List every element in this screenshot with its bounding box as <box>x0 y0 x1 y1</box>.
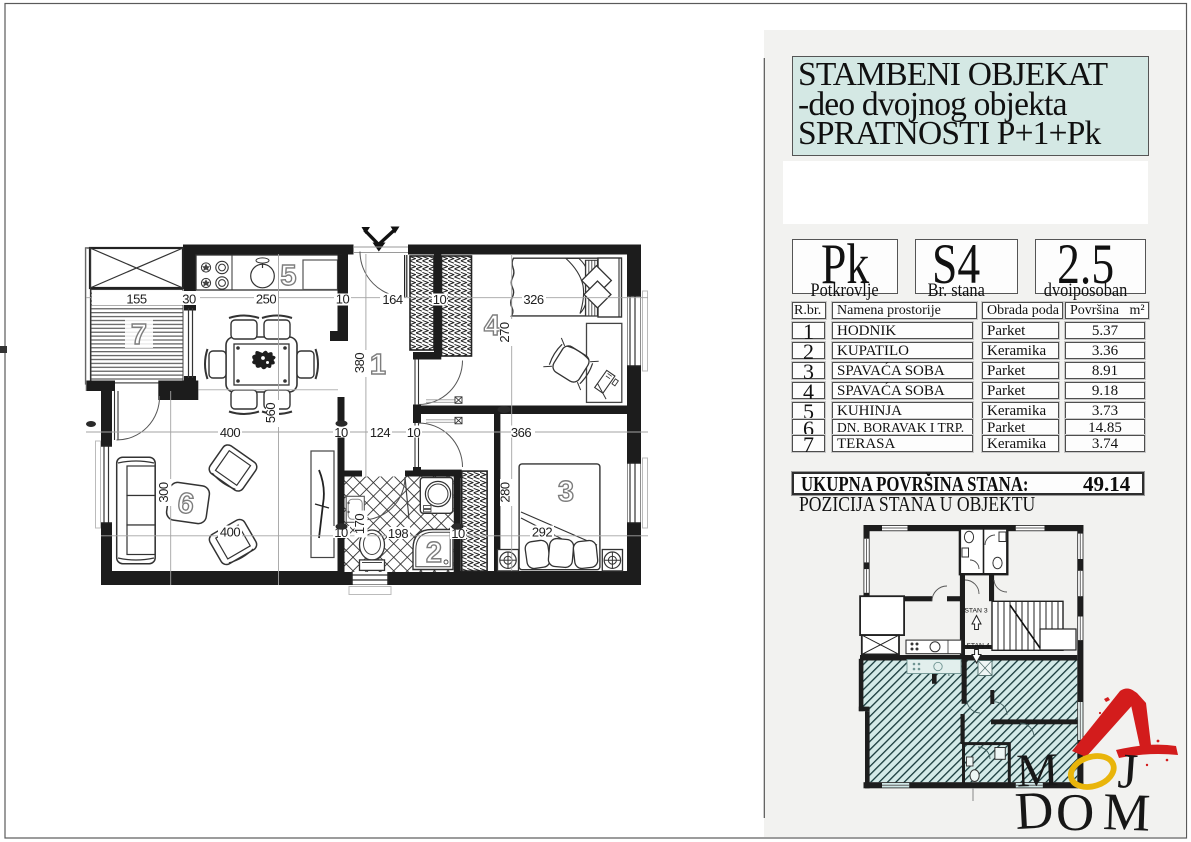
svg-text:198: 198 <box>388 526 408 541</box>
svg-text:560: 560 <box>263 403 278 423</box>
svg-text:5: 5 <box>280 260 296 292</box>
svg-text:M: M <box>1102 783 1151 842</box>
svg-text:366: 366 <box>511 425 531 440</box>
svg-text:400: 400 <box>220 425 240 440</box>
svg-text:10: 10 <box>334 425 348 440</box>
svg-text:280: 280 <box>498 482 513 502</box>
svg-text:292: 292 <box>532 525 552 540</box>
svg-text:10: 10 <box>407 425 421 440</box>
svg-text:300: 300 <box>156 482 171 502</box>
svg-text:380: 380 <box>352 353 367 373</box>
svg-text:124: 124 <box>370 425 390 440</box>
svg-text:10: 10 <box>336 292 350 307</box>
svg-text:326: 326 <box>523 292 543 307</box>
svg-text:270: 270 <box>497 322 512 342</box>
svg-text:400: 400 <box>220 525 240 540</box>
svg-text:D: D <box>1014 781 1055 841</box>
svg-text:10: 10 <box>433 292 447 307</box>
svg-text:7: 7 <box>131 319 147 351</box>
svg-text:164: 164 <box>382 292 402 307</box>
svg-text:STAN 4: STAN 4 <box>966 643 990 650</box>
svg-text:250: 250 <box>256 292 276 307</box>
svg-text:O: O <box>1056 784 1094 842</box>
svg-text:STAN 3: STAN 3 <box>964 608 988 615</box>
svg-text:170: 170 <box>352 514 367 534</box>
svg-text:1: 1 <box>370 349 386 381</box>
svg-text:30: 30 <box>182 292 196 307</box>
svg-text:2: 2 <box>426 537 442 569</box>
svg-text:155: 155 <box>126 292 146 307</box>
svg-text:3: 3 <box>558 476 574 508</box>
